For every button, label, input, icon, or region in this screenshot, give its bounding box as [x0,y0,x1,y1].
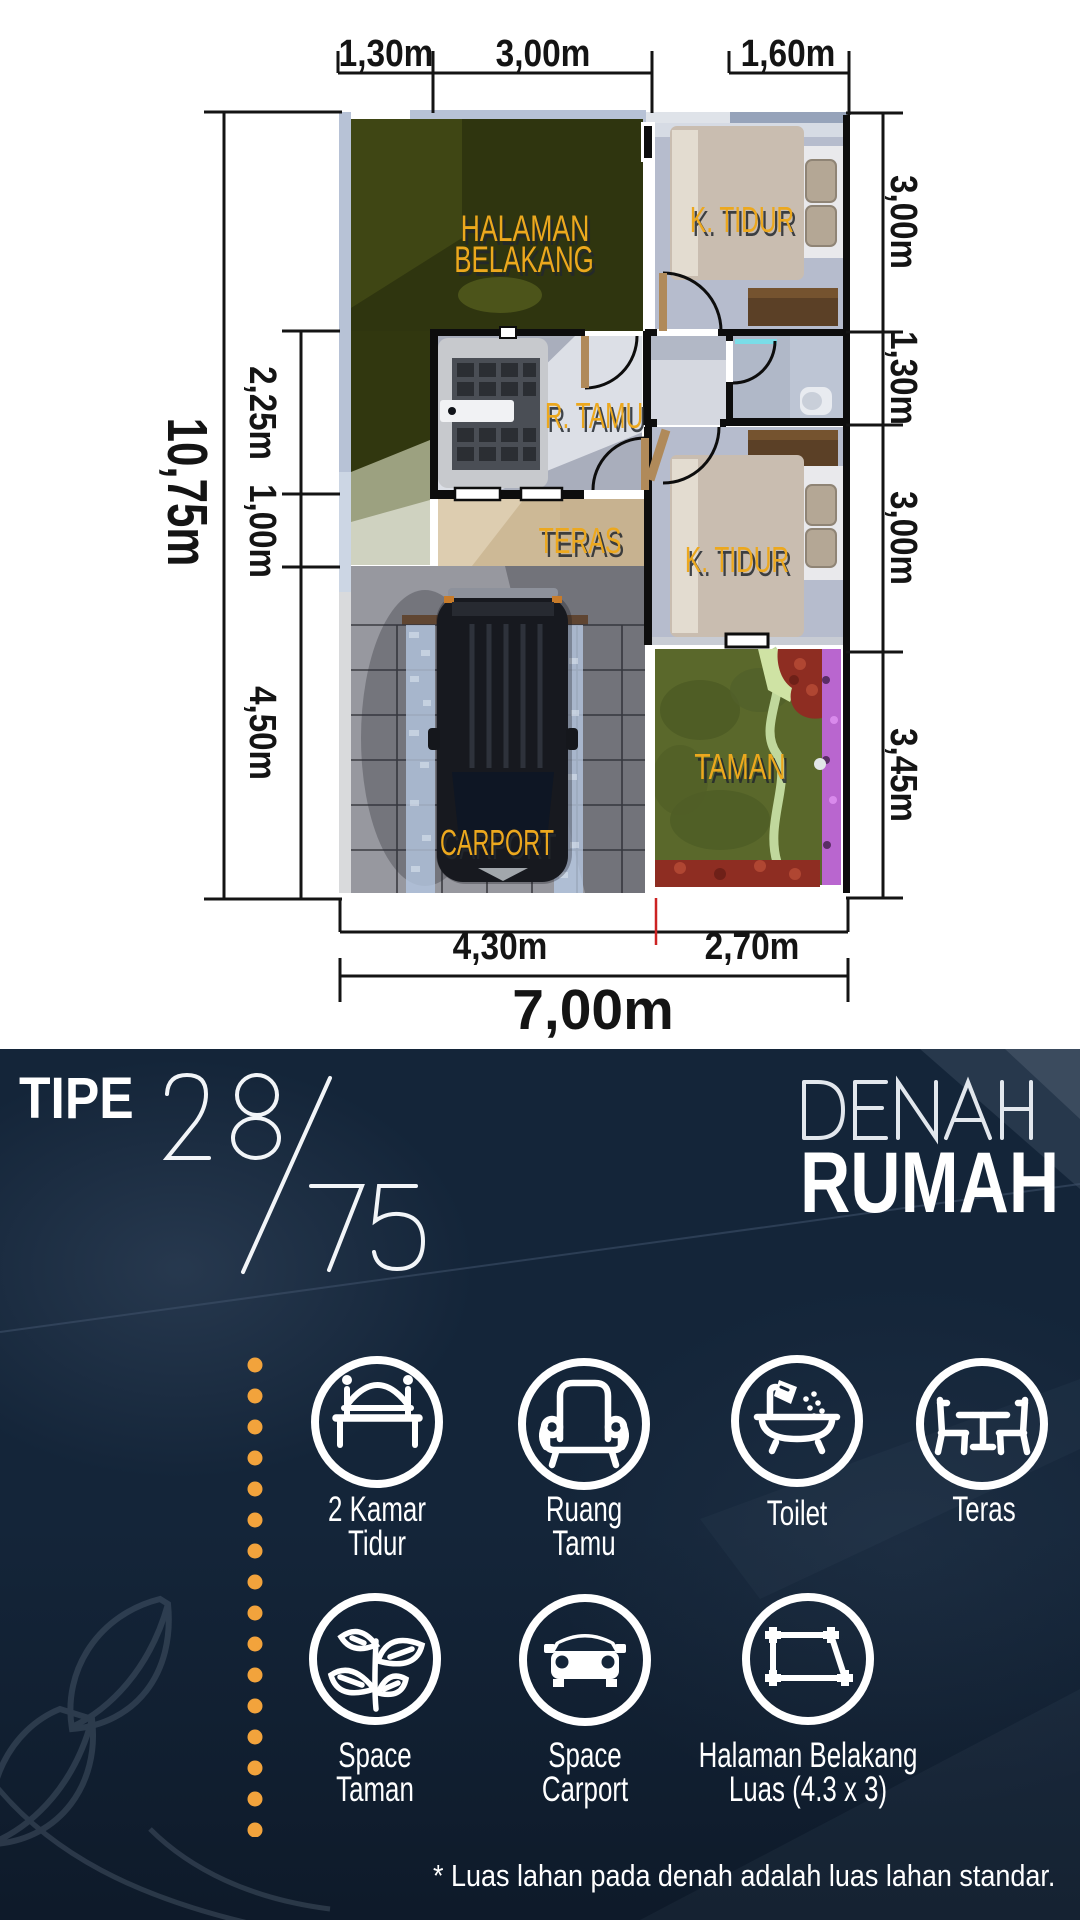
svg-text:TERAS: TERAS [539,520,622,561]
svg-text:1,30m: 1,30m [882,331,925,425]
svg-text:3,00m: 3,00m [882,175,925,269]
svg-text:3,45m: 3,45m [882,728,925,822]
svg-text:BELAKANG: BELAKANG [454,238,594,280]
svg-text:CARPORT: CARPORT [440,824,554,863]
svg-text:10,75m: 10,75m [156,418,220,567]
svg-text:K. TIDUR: K. TIDUR [690,199,794,240]
svg-text:R. TAMU: R. TAMU [545,395,643,436]
svg-text:2,70m: 2,70m [705,925,800,967]
svg-text:1,00m: 1,00m [241,484,284,578]
svg-text:2,25m: 2,25m [241,366,284,460]
svg-text:3,00m: 3,00m [882,491,925,585]
svg-text:1,30m: 1,30m [339,32,434,74]
svg-text:4,30m: 4,30m [453,925,548,967]
svg-text:4,50m: 4,50m [241,686,284,780]
svg-text:1,60m: 1,60m [741,32,836,74]
svg-text:3,00m: 3,00m [496,32,591,74]
svg-text:7,00m: 7,00m [512,978,674,1042]
svg-text:TAMAN: TAMAN [694,746,785,787]
svg-text:K. TIDUR: K. TIDUR [685,539,789,580]
